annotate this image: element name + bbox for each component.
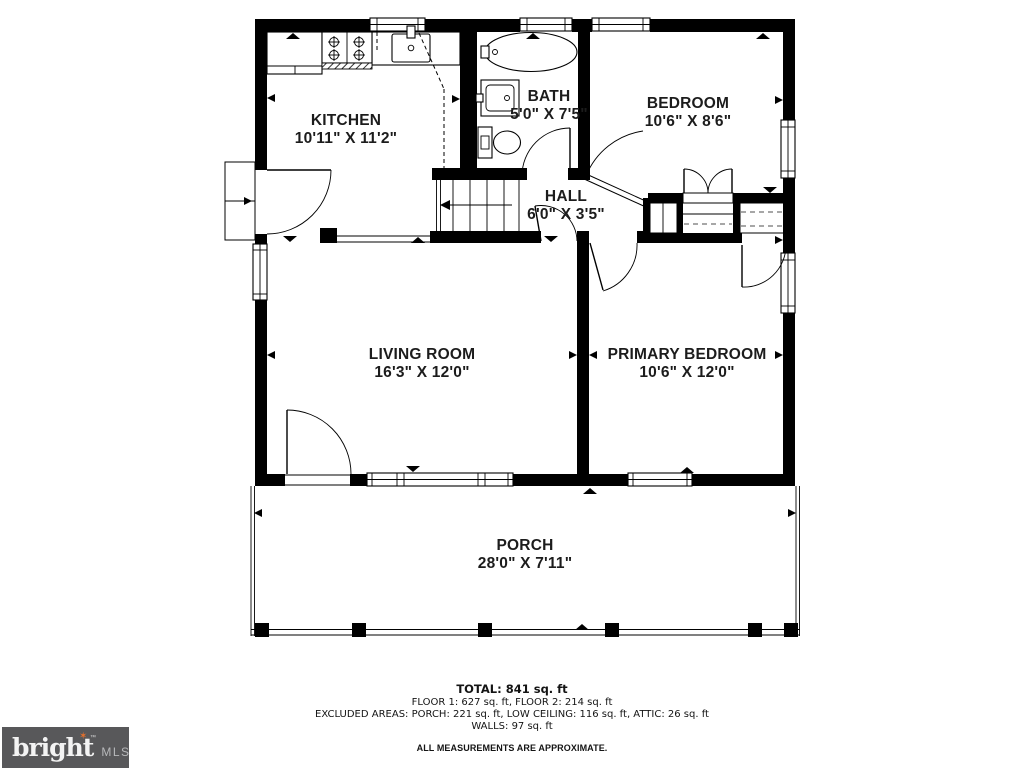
- disclaimer: ALL MEASUREMENTS ARE APPROXIMATE.: [0, 743, 1024, 753]
- total-area: TOTAL: 841 sq. ft: [0, 682, 1024, 697]
- logo-star-icon: ✶: [79, 731, 87, 742]
- window-bedroom-right: [781, 120, 795, 178]
- excluded-areas: EXCLUDED AREAS: PORCH: 221 sq. ft, LOW C…: [0, 709, 1024, 721]
- window-bedroom-top: [592, 18, 650, 31]
- room-dims: 10'11" X 11'2": [295, 130, 397, 148]
- room-dims: 16'3" X 12'0": [369, 364, 475, 382]
- floor-plan-page: KITCHEN 10'11" X 11'2" BATH 5'0" X 7'5" …: [0, 0, 1024, 768]
- window-living-bottom: [367, 473, 513, 486]
- window-primary-right: [781, 253, 795, 313]
- entry-stoop: [225, 162, 255, 240]
- bedroom-closet-doors: [684, 169, 732, 193]
- stair-direction-arrow: [440, 200, 450, 210]
- front-door: [287, 410, 351, 474]
- room-dims: 10'6" X 8'6": [645, 113, 732, 131]
- room-name: KITCHEN: [295, 112, 397, 130]
- room-name: HALL: [527, 188, 605, 206]
- stove-icon: [322, 32, 372, 69]
- room-label-bath: BATH 5'0" X 7'5": [510, 88, 588, 124]
- room-name: BATH: [510, 88, 588, 106]
- logo-trademark: ™: [90, 735, 96, 741]
- room-name: PRIMARY BEDROOM: [608, 346, 767, 364]
- floor-areas: FLOOR 1: 627 sq. ft, FLOOR 2: 214 sq. ft: [0, 697, 1024, 709]
- room-name: PORCH: [478, 537, 573, 555]
- window-living-left: [253, 244, 267, 300]
- room-label-hall: HALL 6'0" X 3'5": [527, 188, 605, 224]
- room-dims: 5'0" X 7'5": [510, 106, 588, 124]
- logo-suffix-text: MLS: [101, 745, 130, 759]
- room-dims: 6'0" X 3'5": [527, 206, 605, 224]
- room-name: BEDROOM: [645, 95, 732, 113]
- room-label-kitchen: KITCHEN 10'11" X 11'2": [295, 112, 397, 148]
- primary-closet-door: [742, 245, 786, 287]
- linen-closet: [650, 203, 677, 233]
- room-name: LIVING ROOM: [369, 346, 475, 364]
- primary-bedroom-door: [590, 243, 637, 291]
- bright-mls-logo: bright ✶ ™ MLS: [2, 727, 129, 768]
- kitchen-entry-door: [267, 170, 331, 234]
- room-label-bedroom: BEDROOM 10'6" X 8'6": [645, 95, 732, 131]
- room-label-living-room: LIVING ROOM 16'3" X 12'0": [369, 346, 475, 382]
- wall-area: WALLS: 97 sq. ft: [0, 721, 1024, 733]
- room-label-porch: PORCH 28'0" X 7'11": [478, 537, 573, 573]
- bedroom-closet: [683, 193, 733, 224]
- bath-door: [522, 128, 570, 176]
- toilet-icon: [478, 127, 521, 158]
- window-primary-bottom: [628, 473, 692, 486]
- area-summary: TOTAL: 841 sq. ft FLOOR 1: 627 sq. ft, F…: [0, 682, 1024, 753]
- front-door-threshold: [285, 475, 350, 485]
- primary-closet: [740, 203, 786, 233]
- staircase: [437, 180, 520, 231]
- room-label-primary-bedroom: PRIMARY BEDROOM 10'6" X 12'0": [608, 346, 767, 382]
- window-bath-top: [520, 18, 572, 31]
- room-dims: 28'0" X 7'11": [478, 555, 573, 573]
- room-dims: 10'6" X 12'0": [608, 364, 767, 382]
- window-kitchen-top: [370, 18, 425, 31]
- bedroom-door: [586, 131, 643, 176]
